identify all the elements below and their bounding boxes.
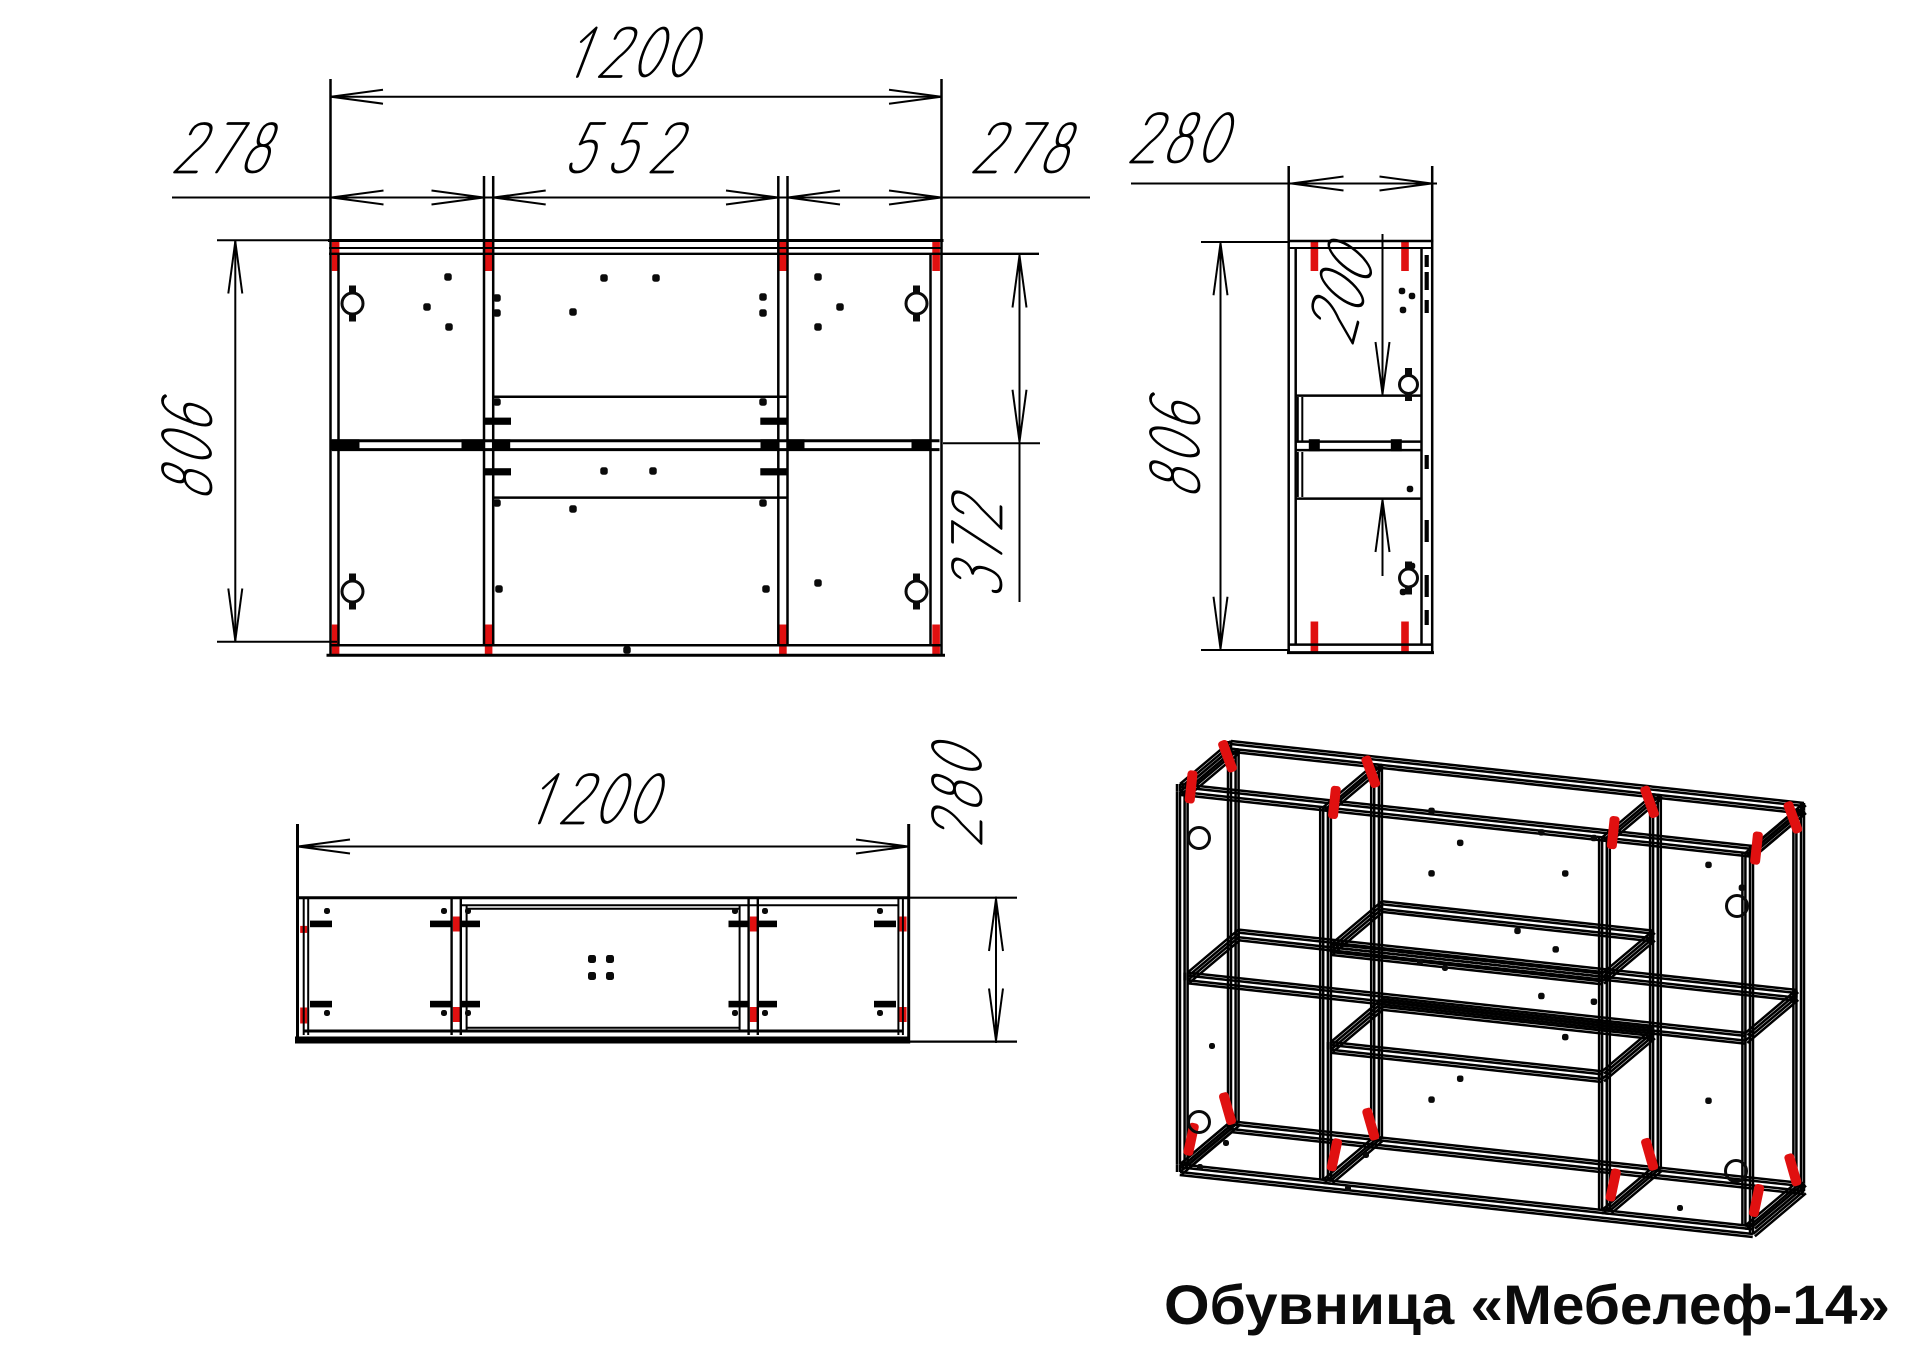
svg-text:Обувница «Мебелеф-14»: Обувница «Мебелеф-14» xyxy=(1164,1273,1890,1336)
